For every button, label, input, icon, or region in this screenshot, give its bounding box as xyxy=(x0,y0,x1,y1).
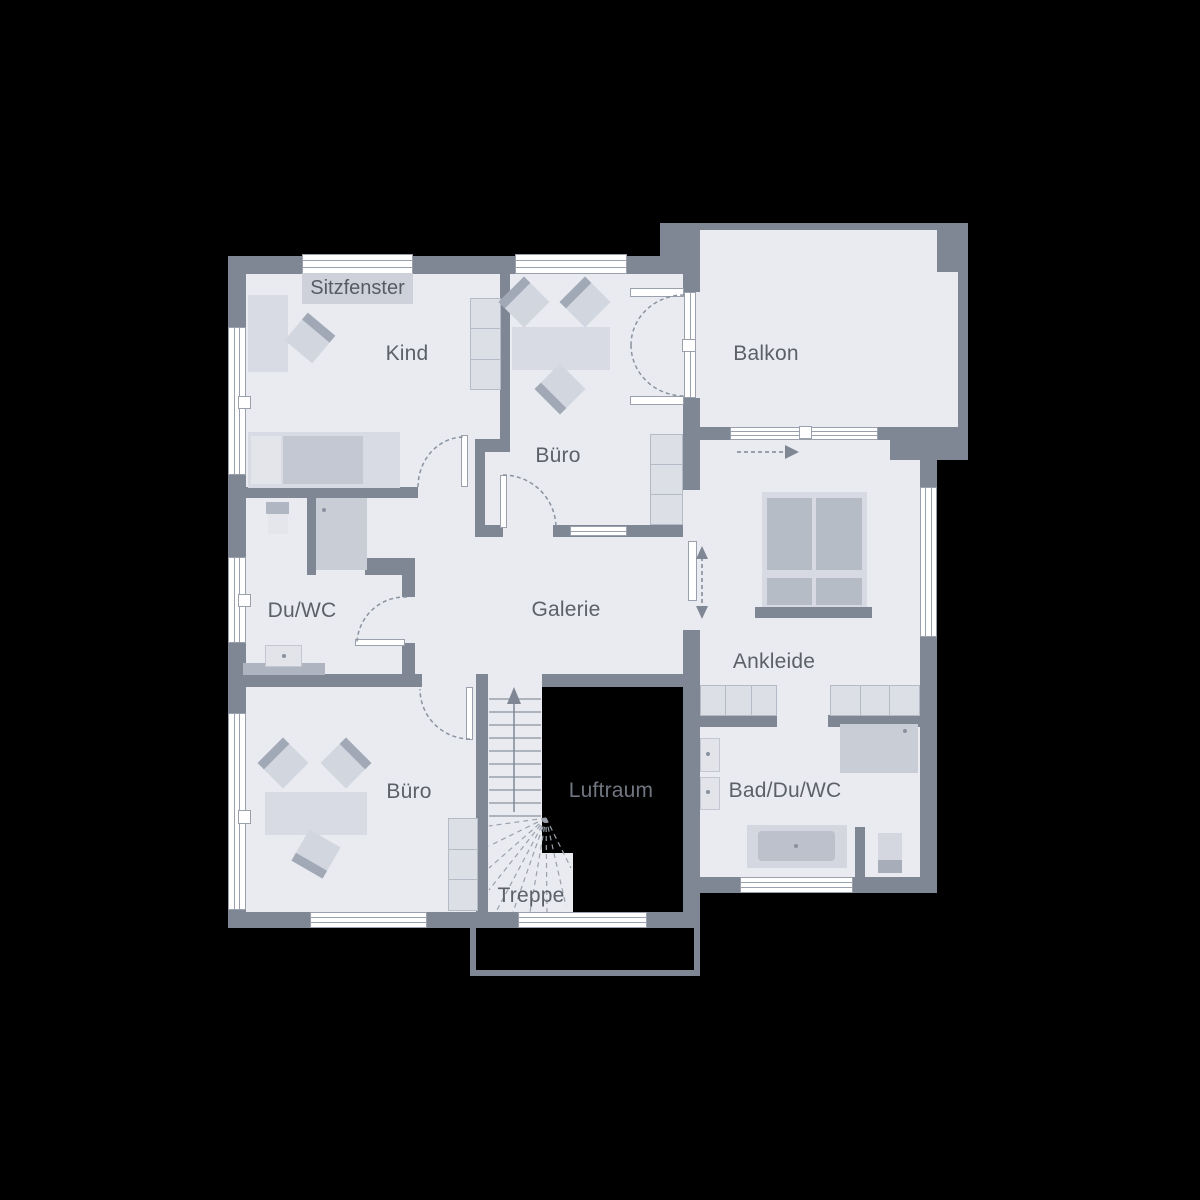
room-label-bad: Bad/Du/WC xyxy=(729,779,842,803)
window-handle xyxy=(238,594,251,607)
shower-drain xyxy=(322,508,326,512)
wardrobe xyxy=(650,434,683,525)
sink-faucet xyxy=(706,790,710,794)
room-label-buero-top: Büro xyxy=(535,444,580,468)
door-leaf-kind xyxy=(461,435,468,487)
sink-faucet xyxy=(706,752,710,756)
window-seat-label: Sitzfenster xyxy=(310,277,404,300)
wardrobe xyxy=(470,298,501,390)
wall-balcony-east xyxy=(958,230,968,427)
wall-balcony-north xyxy=(698,223,958,230)
wall-bad-stub xyxy=(855,827,865,877)
window-galerie-interior xyxy=(570,526,627,536)
toilet-bowl xyxy=(268,514,288,534)
bathtub-drain xyxy=(794,844,798,848)
wall-ankleide-bad-left xyxy=(700,715,777,727)
toilet-tank xyxy=(266,502,289,514)
desk xyxy=(265,792,367,835)
wall-top xyxy=(228,256,700,274)
floor-balcony xyxy=(698,223,958,440)
bed-footboard xyxy=(755,607,872,618)
wardrobe xyxy=(700,685,777,716)
window-buero-north xyxy=(515,254,627,274)
room-label-duwc: Du/WC xyxy=(268,599,337,623)
room-label-galerie: Galerie xyxy=(531,598,600,622)
french-door-leaf-upper xyxy=(630,288,684,297)
door-leaf-buero-bottom xyxy=(466,687,473,740)
room-label-ankleide: Ankleide xyxy=(733,650,815,674)
toilet-bowl xyxy=(878,833,902,861)
porch-outline-right xyxy=(694,893,700,976)
door-leaf-duwc xyxy=(355,639,405,646)
bed-cushion xyxy=(767,578,812,605)
sliding-door-leaf-ankleide xyxy=(688,541,697,601)
bed-mattress xyxy=(767,498,812,570)
window-bad-south xyxy=(740,877,853,893)
window-treppe-south xyxy=(518,912,647,928)
window-handle xyxy=(238,810,251,824)
bed-cushion xyxy=(816,578,862,605)
wall-east-upper xyxy=(683,223,700,292)
window-kind-north xyxy=(302,254,413,274)
sink-faucet xyxy=(282,654,286,658)
wall-east-mid xyxy=(683,398,700,490)
wall-galerie-south xyxy=(542,674,700,687)
wall-shower-column xyxy=(307,498,316,575)
wall-kind-south xyxy=(228,487,418,498)
bed-mattress xyxy=(283,436,363,484)
wall-jog xyxy=(475,439,510,452)
room-label-buero-bottom: Büro xyxy=(386,780,431,804)
wall-duwc-east-lower xyxy=(402,643,415,675)
wall-duwc-east-upper xyxy=(402,558,415,597)
desk xyxy=(248,295,288,372)
shelf xyxy=(448,818,478,911)
shower-drain xyxy=(903,729,907,733)
floor-plan: Sitzfenster xyxy=(0,0,1200,1200)
window-ankleide-east xyxy=(920,487,937,637)
room-label-luftraum: Luftraum xyxy=(569,779,653,803)
room-label-balkon: Balkon xyxy=(733,342,798,366)
porch-outline-left xyxy=(470,928,476,976)
wardrobe xyxy=(830,685,920,716)
window-buero2-south xyxy=(310,912,427,928)
room-label-treppe: Treppe xyxy=(498,884,565,908)
sink xyxy=(700,738,720,772)
door-handle xyxy=(682,339,696,352)
bed-mattress xyxy=(816,498,862,570)
room-label-kind: Kind xyxy=(386,342,429,366)
wall-buero-south-west xyxy=(475,525,503,537)
window-handle xyxy=(238,396,251,409)
window-seat-box: Sitzfenster xyxy=(302,273,413,304)
porch-outline-bottom xyxy=(470,970,700,976)
sink xyxy=(700,777,720,810)
window-handle xyxy=(799,426,812,439)
bed-pillow xyxy=(251,436,281,484)
door-leaf-buero-top xyxy=(500,475,507,528)
wall-duwc-south xyxy=(228,674,422,687)
french-door-leaf-lower xyxy=(630,396,684,405)
toilet-base xyxy=(878,860,902,873)
